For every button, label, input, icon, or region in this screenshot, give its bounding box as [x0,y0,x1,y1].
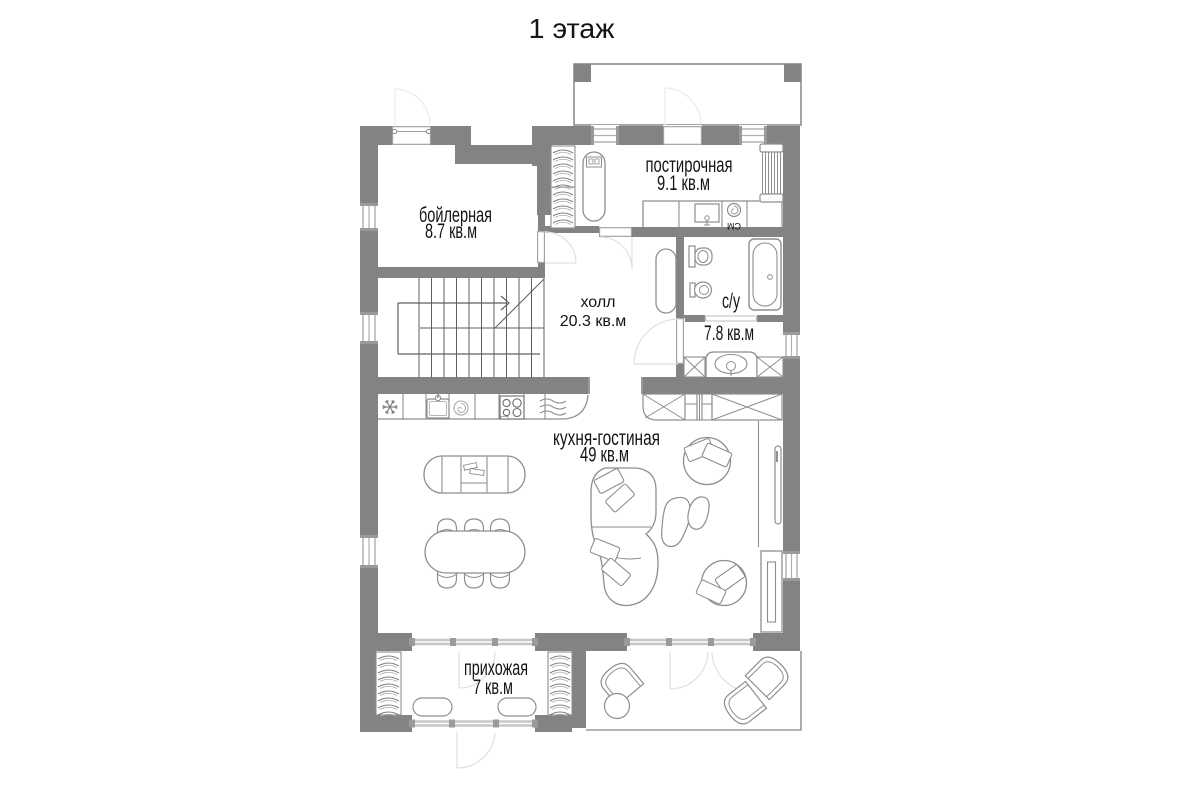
svg-text:20.3 кв.м: 20.3 кв.м [560,313,627,330]
svg-text:7 кв.м: 7 кв.м [473,676,513,699]
svg-text:8.7 кв.м: 8.7 кв.м [425,220,477,243]
svg-text:холл: холл [580,294,615,311]
svg-text:1 этаж: 1 этаж [529,13,615,44]
svg-text:с/у: с/у [722,290,740,313]
svg-text:9.1 кв.м: 9.1 кв.м [657,172,710,195]
svg-text:49 кв.м: 49 кв.м [580,444,629,467]
svg-text:СМ: СМ [727,221,741,231]
svg-text:7.8 кв.м: 7.8 кв.м [704,322,754,345]
